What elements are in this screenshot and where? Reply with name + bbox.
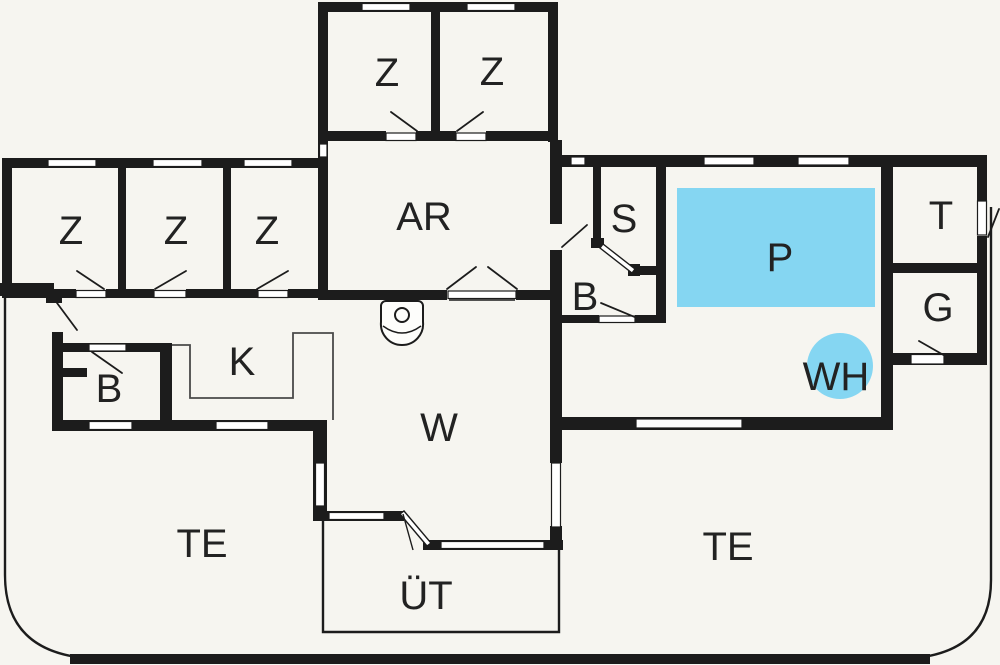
wall-segment [288,289,320,298]
wall-segment [881,165,893,430]
window [704,157,754,165]
room-label-wh: WH [803,355,870,399]
door-opening [456,133,486,141]
window [48,160,96,167]
wall-segment [516,290,558,300]
wall-segment [2,158,12,290]
wall-segment [186,289,258,298]
door-opening [448,291,516,299]
room-label-s: S [611,197,638,241]
wall-segment [416,131,456,141]
wall-segment [160,343,172,431]
wall-segment [431,10,440,134]
wall-segment [106,289,154,298]
door-opening [599,316,635,323]
wall-segment [486,131,558,141]
plan-background [0,0,1000,665]
door-opening [978,201,987,235]
toilet-cistern [395,308,409,322]
room-label-t: T [929,194,953,238]
room-label-z-top-left: Z [375,51,399,95]
window [320,144,328,157]
wall-segment [889,263,977,273]
wall-segment [63,368,87,377]
door-opening [258,291,288,298]
window [798,157,849,165]
wall-segment [977,236,987,365]
wall-segment [0,283,54,296]
wall-segment [593,167,601,240]
room-label-ar: AR [396,195,452,239]
wall-segment [887,155,987,167]
door-opening [154,291,186,298]
room-label-z-west-1: Z [59,209,83,253]
room-label-b-east: B [572,275,599,319]
window [571,157,585,165]
window [216,422,268,430]
floor-plan-canvas: Z Z Z Z Z AR S B P T G WH B K W TE TE ÜT [0,0,1000,665]
window [316,463,325,506]
window [89,422,132,430]
wall-segment [977,157,987,201]
window [362,4,410,11]
door-opening [89,344,126,351]
room-label-pool: P [767,236,794,280]
wall-segment [118,168,126,289]
room-label-z-top-right: Z [480,50,504,94]
room-label-k: K [229,340,256,384]
room-label-te-east: TE [702,525,753,569]
wall-segment [318,140,328,298]
wall-segment [318,290,447,300]
wall-segment [550,250,562,463]
window [636,419,742,428]
wall-segment [550,140,562,224]
wall-segment [318,131,386,141]
room-label-ut: ÜT [399,574,452,618]
room-label-te-west: TE [176,522,227,566]
room-label-z-west-3: Z [255,209,279,253]
window [153,160,202,167]
wall-segment [656,163,666,323]
wall-segment [635,315,666,323]
wall-segment [318,2,328,142]
floor-plan: Z Z Z Z Z AR S B P T G WH B K W TE TE ÜT [0,0,1000,665]
window [244,160,292,167]
room-label-w: W [420,406,458,450]
wall-segment [223,168,231,289]
door-opening [76,291,106,298]
window [552,463,561,527]
toilet-icon [381,301,423,345]
room-label-b-west: B [96,367,123,411]
window [467,4,515,11]
wall-segment [46,291,62,303]
room-label-z-west-2: Z [164,209,188,253]
wall-segment [548,2,558,142]
door-opening [911,355,944,365]
wall-segment [636,266,656,275]
room-label-g: G [922,286,953,330]
door-opening [386,133,416,141]
window [441,542,544,549]
window [329,513,384,520]
